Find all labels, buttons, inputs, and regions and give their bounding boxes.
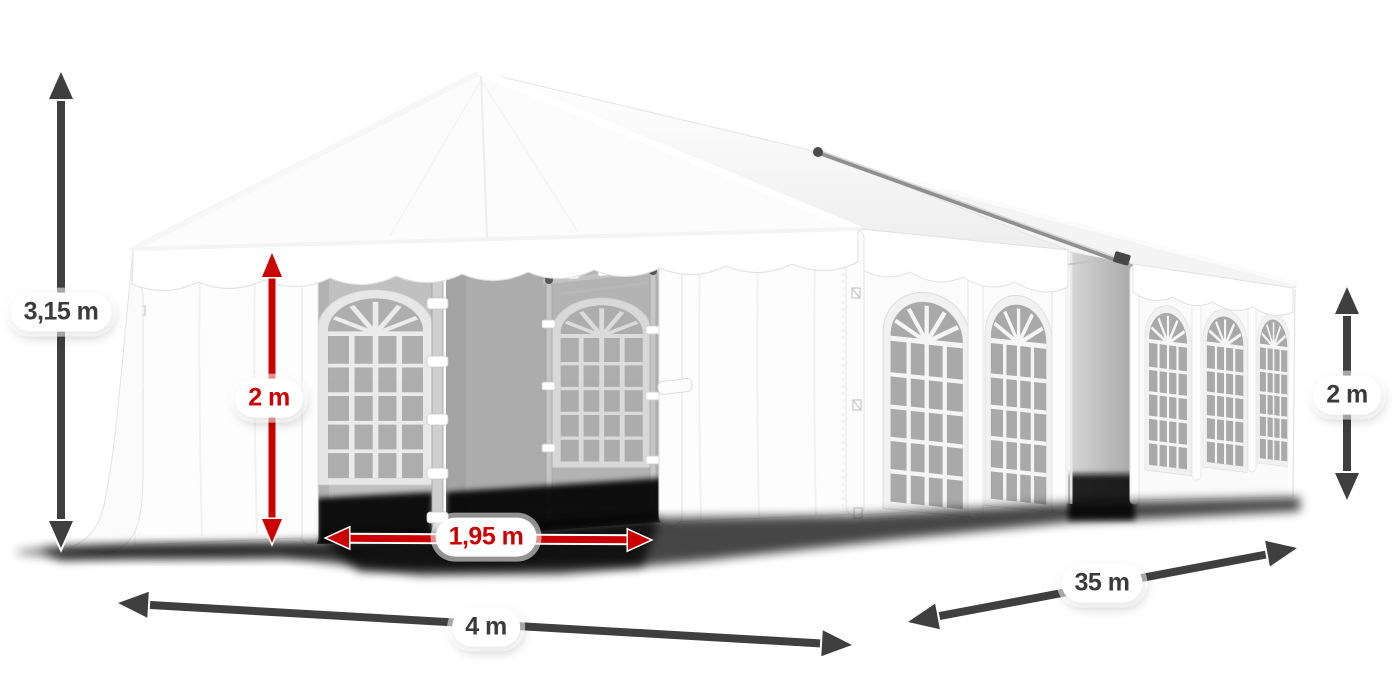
interior-window-left — [318, 290, 433, 485]
rear-window-2 — [1203, 307, 1247, 473]
side-height-label: 2 m — [1313, 376, 1381, 415]
left-door-jamb — [302, 255, 318, 545]
side-window-2 — [985, 292, 1052, 512]
rear-window-3 — [1257, 311, 1290, 467]
interior-window-right — [552, 298, 651, 467]
right-door-opening — [446, 256, 662, 538]
tent-dimension-diagram: 3,15 m 2 m 1,95 m 4 m 35 m 2 m — [0, 0, 1400, 700]
front-right-corner — [843, 230, 864, 518]
left-door-opening — [317, 256, 433, 546]
side-window-1 — [883, 288, 970, 518]
entrance-height-label: 2 m — [235, 379, 303, 418]
total-height-label: 3,15 m — [11, 293, 112, 332]
rear-side-wall — [1130, 264, 1295, 504]
rear-window-1 — [1145, 303, 1191, 476]
length-label: 35 m — [1062, 564, 1143, 603]
entrance-width-label: 1,95 m — [436, 518, 537, 557]
side-wall — [858, 229, 1068, 520]
front-width-label: 4 m — [452, 608, 520, 647]
tent-illustration — [0, 0, 1400, 700]
pole-fitting-front — [813, 147, 823, 157]
